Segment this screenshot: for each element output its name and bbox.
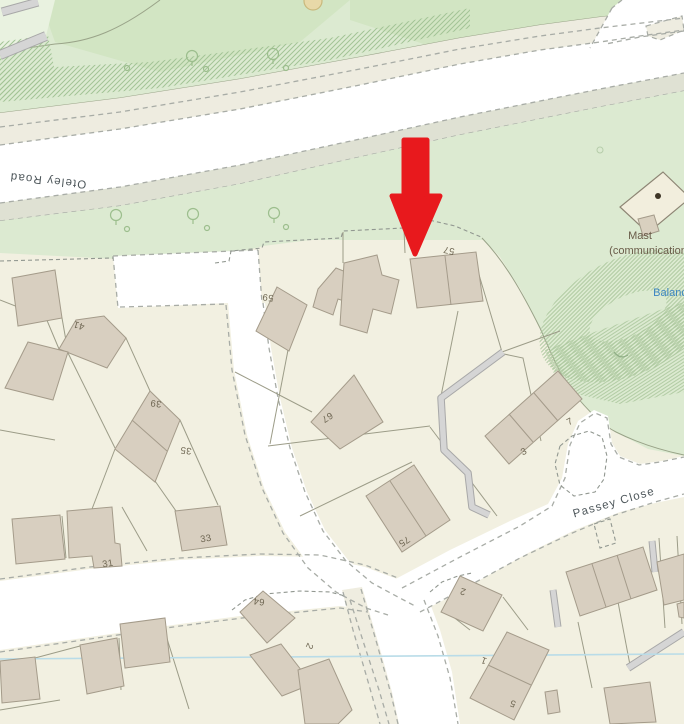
building-terrace xyxy=(566,547,657,616)
building xyxy=(545,690,560,714)
building xyxy=(604,682,656,724)
road-entry-stub xyxy=(113,250,262,308)
mast-point xyxy=(655,193,661,199)
building xyxy=(298,659,352,724)
building xyxy=(340,255,399,333)
building-39-35 xyxy=(115,391,180,482)
building xyxy=(80,638,124,694)
map-viewport[interactable]: Oteley RoadPassey CloseMast(communicatio… xyxy=(0,0,684,724)
building xyxy=(677,602,684,618)
building-33 xyxy=(175,506,227,551)
building-67 xyxy=(311,375,383,449)
building-31 xyxy=(67,507,122,568)
building xyxy=(12,270,62,326)
building-57 xyxy=(410,252,483,308)
building xyxy=(120,618,170,668)
building-41 xyxy=(59,316,126,368)
building xyxy=(5,342,68,400)
building-1-5 xyxy=(470,632,549,720)
building xyxy=(12,515,65,564)
building xyxy=(657,554,684,605)
map-canvas[interactable] xyxy=(0,0,684,724)
building xyxy=(0,657,40,703)
